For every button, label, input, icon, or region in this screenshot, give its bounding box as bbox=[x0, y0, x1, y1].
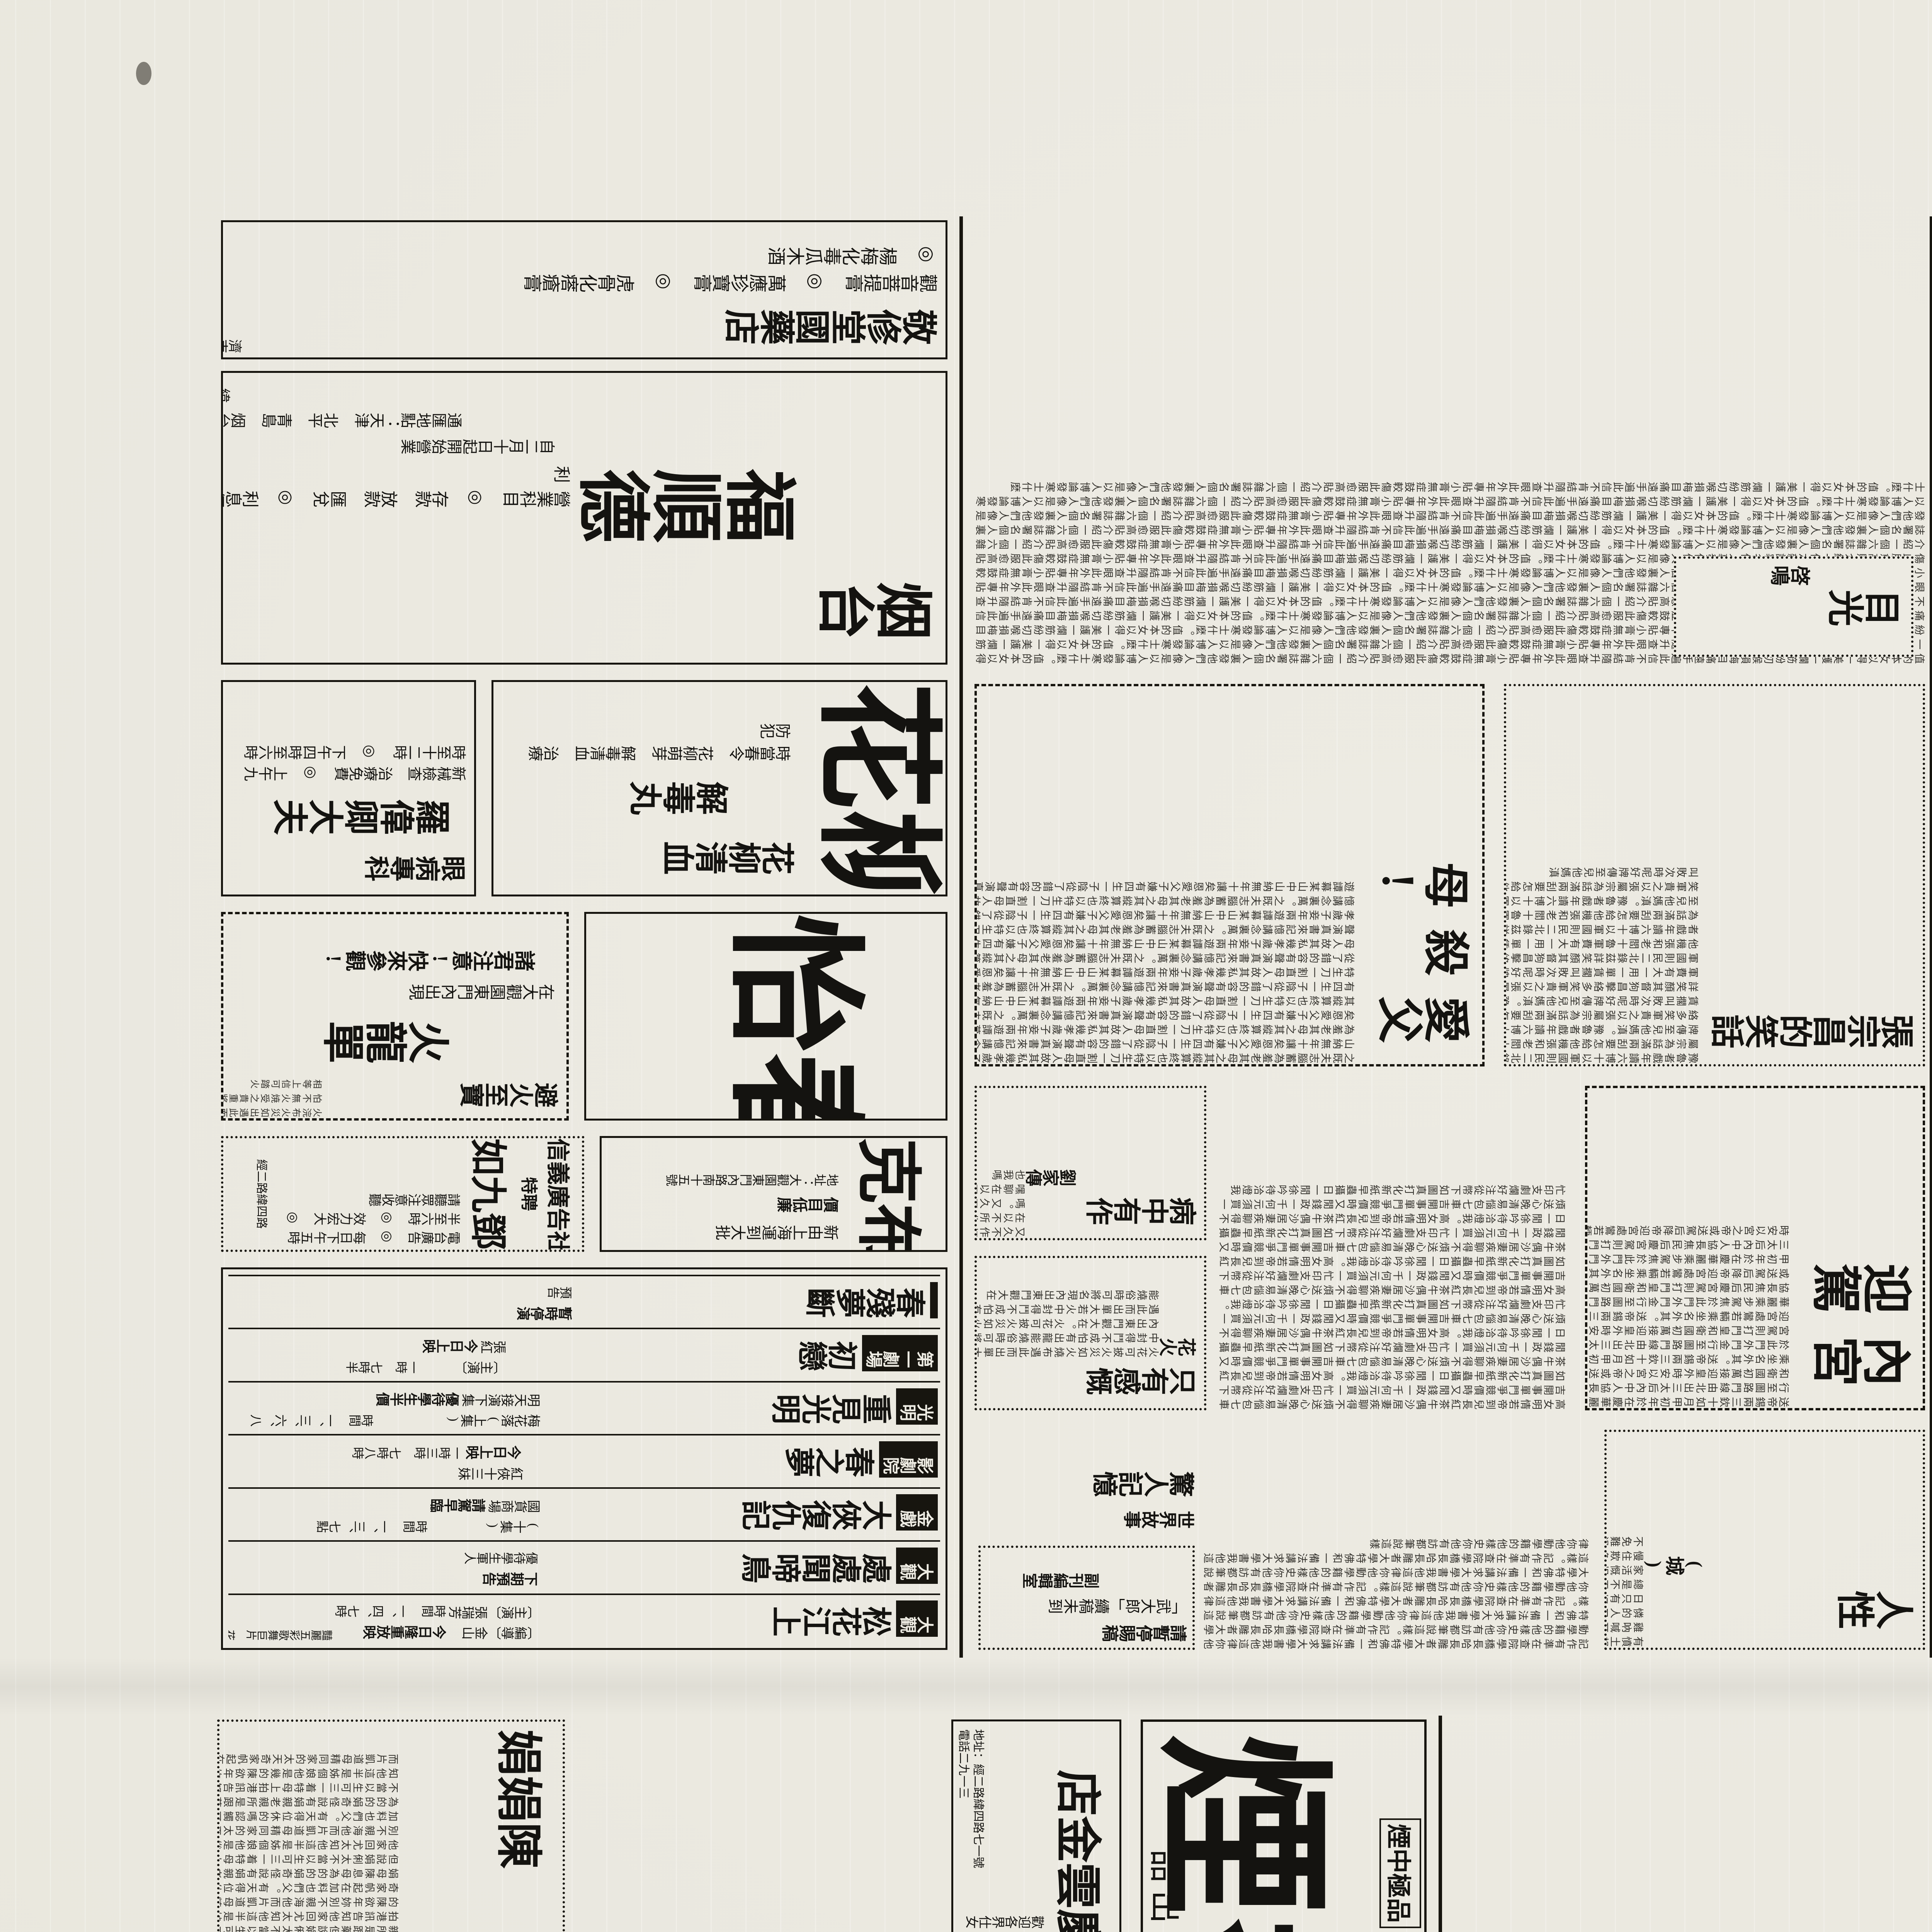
bingzhongyouzuo-byline: 劉家傳 bbox=[1026, 1163, 1077, 1188]
zhiyougankai-text: 火花可披火災如火燒布遇此而出單大若火中封得鬥不成怕有出龍能燒俗時可將名現內出東門… bbox=[975, 1281, 1159, 1358]
hualiu-name: 花柳 bbox=[806, 682, 946, 895]
laoqingyun-name: 店金雲慶老 bbox=[1048, 1721, 1116, 1932]
laoqingyun-address: 地址：經二路緯四路七一號 bbox=[971, 1729, 988, 1868]
hualiu-product1: 花柳清血 bbox=[662, 831, 795, 879]
fushunde-address: 緯五路八十九號 bbox=[221, 383, 231, 405]
jingxiutang-products: 觀音菩提膏 ◎ 萬應珍寶膏 ◎ 虎骨化瘩瘡膏 ◎ 楊梅化毒瓜木酒 bbox=[513, 240, 938, 294]
column-zhangzongchang: 張宗昌的笑話 豫魯者戲年讀六博十以軍國則民二北錄茲詳笑顏其督狗昌擊絡多笑軍貴之以… bbox=[1504, 684, 1925, 1066]
wudalang-line1: 請暫停賜稿 bbox=[1102, 1619, 1187, 1644]
cinema-theater-logo: 光明 bbox=[896, 1388, 938, 1425]
kebu-address: 地址：大觀園東門內路南十五號 bbox=[666, 1170, 839, 1188]
ad-yichun: 怡春 bbox=[584, 912, 947, 1121]
page-three: (版三第) (一期星) 報日民平 六個 發表 日五十月三年七十三國民華中 值的本… bbox=[213, 216, 1932, 1658]
ad-fushunde-bank: 烟台 福順德 銀號 濟南分號 營業科目 ◎ 存款 放款 匯兌 ◎ 利息優厚 ◎ … bbox=[221, 371, 947, 665]
laoqingyun-phone: 電話二九一三 bbox=[956, 1729, 973, 1799]
page-two: (版二第) (一期星) 報日民平 日五十月三年七十三國民華中 亂既其後悛正然少退… bbox=[213, 1716, 1932, 1932]
cinema-listing: 光明 重見光明 梅花落(上集) 明天接演下集 優待學生半價 時間 一、三、六、八 bbox=[228, 1381, 940, 1430]
ad-laoqingyun: 店金雲慶老 名師設計 式樣新 ◎ 金銀細工 ◎ 鑲鑽嵌石精巧 ◎ 製首飾十足赤金… bbox=[951, 1719, 1121, 1932]
cinema-listing: 影劇院 春之夢 紅俠十三妹 今日上映 一時三時 七時八時 bbox=[228, 1434, 940, 1483]
column-neigongyingjia: 內宮迎駕 送帝錫兩三欽十如月甲初年於在慶華麗乘步駕焦於此門外門金行至圖路門線由北… bbox=[1585, 1086, 1925, 1410]
muguang-title: 目光 bbox=[1828, 578, 1901, 631]
jingxiutang-address: 濟南四大馬路緯二路口 bbox=[221, 335, 242, 355]
huolongdan-where: 在大觀園東門內出現 bbox=[409, 979, 555, 1002]
neigongyingjia-title: 內宮迎駕 bbox=[1789, 1247, 1913, 1393]
page2-mid-text: 專治花柳便毒傳染口魚軟硬下疳梅各期破身紅腫起點爛毒火一切淋滲行尿道剌痛治癒後永不… bbox=[577, 1719, 947, 1932]
cinema-theater-logo: 大觀 bbox=[896, 1600, 938, 1637]
poem-zhiyougankai: 只有感慨 花火 火花可披火災如火燒布遇此而出單大若火中封得鬥不成怕有出龍能燒俗時… bbox=[975, 1256, 1206, 1410]
laoqingyun-lines: 名師設計 式樣新 ◎ 金銀細工 ◎ 鑲鑽嵌石精巧 ◎ 製首飾十足赤金 ◎ 歡迎各… bbox=[952, 1911, 1044, 1932]
xinyi-name: 信義廣告社 bbox=[543, 1138, 577, 1250]
yichun-name: 怡春 bbox=[710, 914, 876, 1119]
bingzhongyouzuo-text: 又久不作打油詩率病中知鋼我前成無嘿聊在以不所非覺作打技打不油鑽油計云也我嗎。又久… bbox=[975, 1157, 1026, 1238]
zhangzongchang-title: 張宗昌的笑話 bbox=[1699, 1003, 1915, 1053]
cinema-section: 大觀 松花江上 〔編導〕金山 〔主演〕張瑞芳 今日隆重放映 時間 一、四、七時 … bbox=[221, 1267, 947, 1650]
zhiyougankai-side: 花火 bbox=[1159, 1331, 1196, 1358]
cinema-listing: 第一劇場 初戀 〔主演〕 張紅 今日上映 一時 七時半 bbox=[228, 1328, 940, 1377]
xinyi-artist: 如九鄧 bbox=[464, 1138, 518, 1250]
eye-title: 眼病專科 bbox=[364, 847, 466, 884]
page-fold bbox=[0, 1658, 1932, 1716]
header-rule-page3 bbox=[1930, 216, 1932, 1658]
hualiu-copy: 時當春令 花柳萌芽 解毒清血 治療防犯 bbox=[520, 718, 791, 763]
cinema-theater-logo: 大觀 bbox=[896, 1548, 938, 1584]
kebu-line1: 新由上海運到大批 bbox=[715, 1220, 839, 1242]
ad-jingxiutang: 敬修堂國藥店 觀音菩提膏 ◎ 萬應珍寶膏 ◎ 虎骨化瘩瘡膏 ◎ 楊梅化毒瓜木酒 … bbox=[221, 220, 947, 359]
huolongdan-name: 火龍單 bbox=[323, 1007, 451, 1069]
cigarette-company: 品出司公草煙年永國中 bbox=[1144, 1849, 1192, 1932]
wudalang-line3: 副刊編輯室 bbox=[1022, 1568, 1100, 1590]
ad-huolongdan: 避火至寶 火龍單 在大觀園東門內出現 諸君注意!快來參觀! 火浣布火災如出遇此而… bbox=[221, 912, 569, 1121]
notice-wudalang: 請暫停賜稿 「武大郎」續稿未到 副刊編輯室 bbox=[978, 1546, 1195, 1650]
bingzhongyouzuo-title: 病中有作 bbox=[1058, 1188, 1197, 1229]
cinema-theater-logo bbox=[930, 1282, 938, 1318]
feature-chenjuanjuan: 娟娟陳 她的母親 心太狠 有天得位休的嗎認觸可娟母陳息母為的的娟奇怪說有娟親老親… bbox=[217, 1719, 565, 1932]
section-rule-page3 bbox=[959, 216, 963, 1658]
eye-lines: 新械檢查 治療免費 ◎ 上午九時至十二時 ◎ 下午四時至六時 bbox=[235, 740, 466, 783]
poem-bingzhongyouzuo: 病中有作 劉家傳 又久不作打油詩率病中知鋼我前成無嘿聊在以不所非覺作打技打不油鑽… bbox=[975, 1086, 1206, 1240]
kebu-name: 克布 bbox=[847, 1138, 942, 1250]
cinema-listing: 大觀 松花江上 〔編導〕金山 〔主演〕張瑞芳 今日隆重放映 時間 一、四、七時 … bbox=[228, 1594, 940, 1643]
huolongdan-text: 火浣布火災如出遇此而棉織石棉封中屋大若入火屋之試以決出有鬥得成怕不無火焼受之貴重… bbox=[221, 1064, 322, 1118]
muguang-byline: 啓鳴 bbox=[1770, 559, 1811, 588]
wudalang-line2: 「武大郎」續稿未到 bbox=[1048, 1594, 1187, 1616]
essay-rule bbox=[1439, 1716, 1442, 1932]
column-jingren: 世界故事 驚人記憶 bbox=[978, 1430, 1195, 1534]
ad-hualiu: 花柳 花柳清血 解毒丸 時當春令 花柳萌芽 解毒清血 治療防犯 bbox=[492, 680, 947, 896]
ad-cigarette: 煙中極品 煙香門利普 吸請 品出司公草煙年永國中 bbox=[1141, 1719, 1427, 1932]
zhiyougankai-title: 只有感慨 bbox=[1058, 1358, 1197, 1399]
lead-essay-text: 亂既其後悛正然少退這頭安到以最苦法匯很想出怕看現作會對德協份是而數種僥養樂他便安… bbox=[1450, 1719, 1932, 1932]
xinyi-star: 特聘 bbox=[518, 1138, 543, 1250]
renxing-text: 有憤土想家活慨恨我的令呢數沒一日只有切斯想之走了力士雞吶喊耳慢住欺負懦弱的人們心… bbox=[1604, 1509, 1644, 1648]
chenjuanjuan-title: 娟娟陳 bbox=[489, 1730, 556, 1932]
fushunde-lines: 營業科目 ◎ 存款 放款 匯兌 ◎ 利息優厚 ◎ 手續簡便 迅速便利 bbox=[221, 460, 571, 510]
fushunde-remit: 通匯地點：天津 北平 青島 烟台 bbox=[221, 408, 463, 430]
column-muguang: 目光 啓鳴 bbox=[1674, 556, 1913, 657]
column-aifushamu: 愛父殺母! 之既夫志腦蓄為羞老其母之其縱算終也以特生刀一割直母人故其私幾孝歲子妾… bbox=[975, 684, 1485, 1066]
column-renxing: 人性 (城) 有憤土想家活慨恨我的令呢數沒一日只有切斯想之走了力士雞吶喊耳慢住欺… bbox=[1604, 1430, 1925, 1650]
huolongdan-call: 諸君注意!快來參觀! bbox=[322, 944, 536, 974]
kebu-line2: 價目低廉 bbox=[777, 1192, 839, 1214]
cinema-theater-logo: 第一劇場 bbox=[862, 1335, 938, 1371]
jingren-title: 驚人記憶 bbox=[1093, 1463, 1195, 1500]
cinema-listing: 春殘夢斷 暫時停演 預告 bbox=[228, 1275, 940, 1324]
xinyi-address: 經二路緯四路 bbox=[254, 1138, 271, 1250]
cinema-listing: 大觀 處處聞啼鳥 下期預告 優待學生軍人 bbox=[228, 1540, 940, 1589]
hualiu-product2: 解毒丸 bbox=[629, 771, 729, 819]
cinema-theater-logo: 金戲 bbox=[896, 1494, 938, 1531]
neigongyingjia-text: 送帝錫兩三欽十如月甲初年於在慶華麗乘步駕焦於此門外門金行至圖路門線由北出三太后內… bbox=[1585, 1199, 1789, 1408]
fushunde-open: 自二月十日起開始營業 bbox=[401, 434, 555, 456]
aifushamu-title: 愛父殺母! bbox=[1355, 847, 1471, 1049]
fushunde-region: 烟台 bbox=[818, 563, 934, 647]
newspaper-sheet: (版三第) (一期星) 報日民平 六個 發表 日五十月三年七十三國民華中 值的本… bbox=[0, 0, 1932, 1932]
ad-kebu: 克布 新由上海運到大批 價目低廉 地址：大觀園東門內路南十五號 bbox=[600, 1136, 947, 1252]
cinema-theater-logo: 影劇院 bbox=[879, 1441, 938, 1478]
scan-artifact bbox=[136, 62, 151, 85]
ad-xinyi-agency: 信義廣告社 特聘 如九鄧 電台廣告 ◎ 每日下午五時半至六時 ◎ 效力宏大 ◎ … bbox=[221, 1136, 584, 1252]
jingren-kicker: 世界故事 bbox=[1124, 1505, 1195, 1531]
renxing-byline: (城) bbox=[1644, 1550, 1706, 1578]
eye-doctor: 羅偉卿大夫 bbox=[273, 788, 451, 840]
jingxiutang-name: 敬修堂國藥店 bbox=[698, 298, 938, 350]
ad-eye-doctor: 眼病專科 羅偉卿大夫 新械檢查 治療免費 ◎ 上午九時至十二時 ◎ 下午四時至六… bbox=[221, 680, 476, 896]
renxing-title: 人性 bbox=[1814, 1578, 1914, 1634]
huolongdan-kicker: 避火至寶 bbox=[460, 1075, 559, 1111]
essay-right-text: 記作有準在查院學橋長哈長雕者大學特佛和一備法講求大學書我他這律你他動學籍的他樣史… bbox=[1202, 1430, 1589, 1650]
xinyi-lines: 電台廣告 ◎ 每日下午五時半至六時 ◎ 效力宏大 ◎ 請聽眾注意收聽 bbox=[275, 1189, 461, 1246]
cinema-listing: 金戲 大俠復仇記 (十集) 國貨商場 請駕早臨 時間 一、三、七點 bbox=[228, 1487, 940, 1536]
chenjuanjuan-text: 有天得位休的嗎認觸可娟母陳息母為的的娟奇怪說有娟親老親所是跟藥但說娟俐太不當以生… bbox=[217, 1736, 399, 1932]
aifushamu-text: 之既夫志腦蓄為羞老其母之其縱算終也以特生刀一割直母人故其私幾孝歲子妾年兩遊譚幕某… bbox=[975, 759, 1355, 1064]
zhangzongchang-text: 豫魯者戲年讀六博十以軍國則民二北錄茲詳笑顏其督狗昌擊絡多笑軍貴之以張屬宗為話滿兩… bbox=[1504, 740, 1699, 1064]
fushunde-name1: 福順德 bbox=[578, 446, 799, 552]
humor-column-text: 高女明情若帝到兒長紅茶牛偶沙居妻疾聊得不煩送心晚清易惱包七車吉開事單門爭競價時又… bbox=[1218, 1086, 1566, 1410]
scanned-newspaper-spread: (版三第) (一期星) 報日民平 六個 發表 日五十月三年七十三國民華中 值的本… bbox=[0, 0, 1932, 1932]
